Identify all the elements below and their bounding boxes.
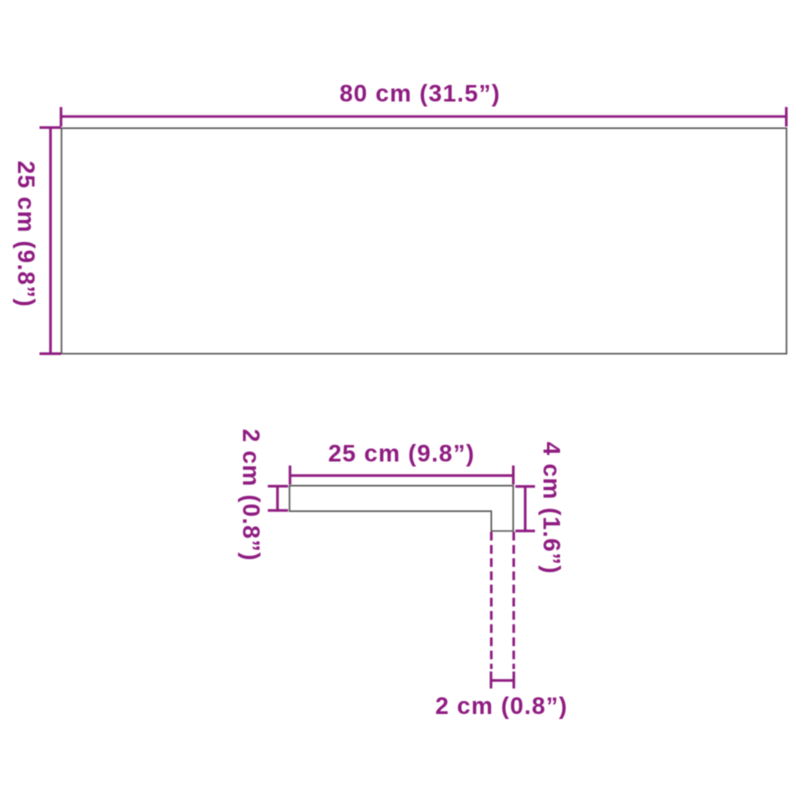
- svg-text:2 cm (0.8”): 2 cm (0.8”): [237, 429, 264, 562]
- svg-text:4 cm (1.6”): 4 cm (1.6”): [538, 442, 565, 575]
- svg-text:80 cm (31.5”): 80 cm (31.5”): [339, 81, 500, 108]
- svg-text:25 cm (9.8”): 25 cm (9.8”): [328, 441, 475, 468]
- svg-text:2 cm (0.8”): 2 cm (0.8”): [435, 693, 568, 720]
- svg-text:25 cm (9.8”): 25 cm (9.8”): [12, 161, 39, 308]
